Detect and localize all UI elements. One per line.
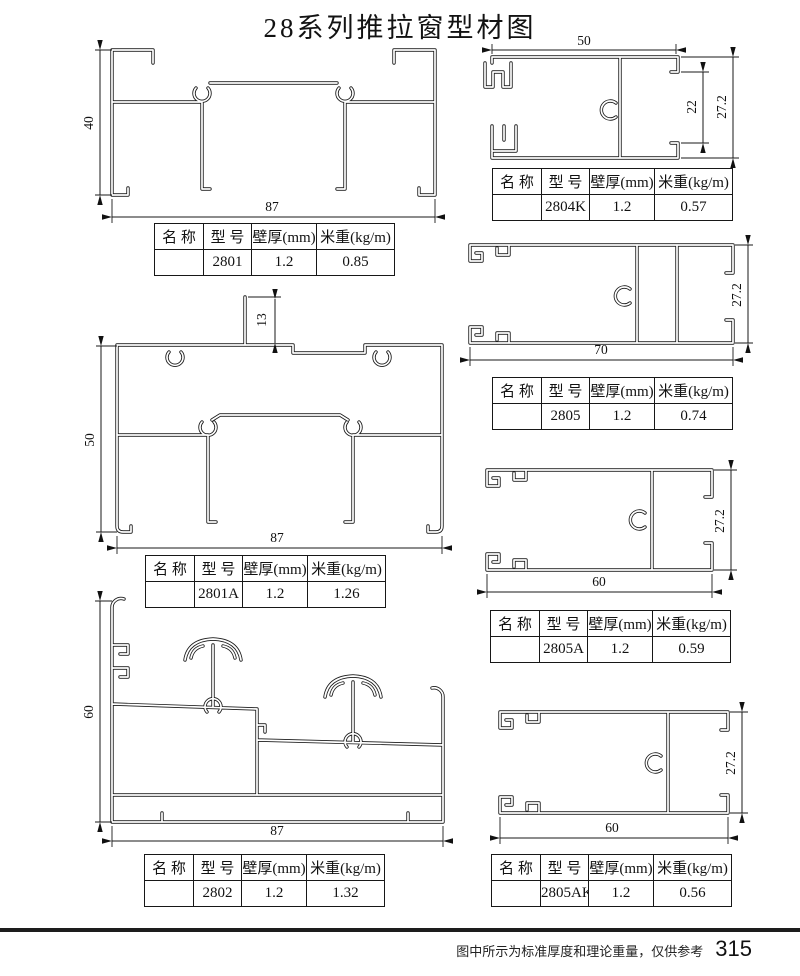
cell-weight: 1.26 [308, 582, 386, 608]
cell-model: 2805AK [541, 881, 589, 907]
header-weight: 米重(kg/m) [317, 224, 395, 250]
header-model: 型 号 [542, 378, 590, 404]
spec-table-2801: 名 称 型 号 壁厚(mm) 米重(kg/m) 2801 1.2 0.85 [154, 223, 395, 276]
header-model: 型 号 [204, 224, 252, 250]
dim-height-2804K: 27.2 [714, 95, 729, 119]
drawing-2805AK: 27.2 60 [500, 712, 748, 844]
header-model: 型 号 [195, 556, 243, 582]
cell-model: 2805 [542, 404, 590, 430]
drawing-2805: 27.2 70 [470, 245, 753, 366]
cell-name [492, 881, 541, 907]
spec-table-2805: 名 称 型 号 壁厚(mm) 米重(kg/m) 2805 1.2 0.74 [492, 377, 733, 430]
header-weight: 米重(kg/m) [654, 855, 732, 881]
dim-height-2801A: 50 [82, 433, 97, 447]
cell-thickness: 1.2 [252, 250, 317, 276]
cell-name [491, 637, 540, 663]
spec-table-2802: 名 称 型 号 壁厚(mm) 米重(kg/m) 2802 1.2 1.32 [144, 854, 385, 907]
dim-width-2804K: 50 [577, 33, 591, 48]
header-thickness: 壁厚(mm) [252, 224, 317, 250]
dim-inner-2804K: 22 [684, 100, 699, 114]
header-weight: 米重(kg/m) [655, 169, 733, 195]
header-weight: 米重(kg/m) [655, 378, 733, 404]
header-name: 名 称 [492, 855, 541, 881]
header-model: 型 号 [541, 855, 589, 881]
cell-name [145, 881, 194, 907]
dim-height-2805A: 27.2 [712, 509, 727, 533]
header-thickness: 壁厚(mm) [590, 378, 655, 404]
cell-name [146, 582, 195, 608]
header-thickness: 壁厚(mm) [590, 169, 655, 195]
cell-weight: 0.74 [655, 404, 733, 430]
footer-rule [0, 928, 800, 932]
spec-table-2805A: 名 称 型 号 壁厚(mm) 米重(kg/m) 2805A 1.2 0.59 [490, 610, 731, 663]
cell-thickness: 1.2 [590, 195, 655, 221]
drawing-2802: 60 87 [81, 598, 443, 847]
header-weight: 米重(kg/m) [307, 855, 385, 881]
header-thickness: 壁厚(mm) [589, 855, 654, 881]
dim-height-2802: 60 [81, 705, 96, 719]
drawing-2804K: 50 22 27.2 [485, 33, 739, 158]
header-name: 名 称 [145, 855, 194, 881]
catalog-page: 28系列推拉窗型材图 40 87 [0, 0, 800, 976]
cell-weight: 0.57 [655, 195, 733, 221]
cell-thickness: 1.2 [588, 637, 653, 663]
header-thickness: 壁厚(mm) [242, 855, 307, 881]
drawing-2801: 40 87 [81, 50, 435, 223]
spec-table-2804K: 名 称 型 号 壁厚(mm) 米重(kg/m) 2804K 1.2 0.57 [492, 168, 733, 221]
cell-name [493, 404, 542, 430]
profile-drawings: 40 87 50 13 87 60 [0, 0, 800, 976]
header-name: 名 称 [493, 378, 542, 404]
dim-width-2805: 70 [594, 342, 608, 357]
header-weight: 米重(kg/m) [653, 611, 731, 637]
header-weight: 米重(kg/m) [308, 556, 386, 582]
footer-note: 图中所示为标准厚度和理论重量，仅供参考 [456, 941, 703, 960]
cell-thickness: 1.2 [242, 881, 307, 907]
cell-model: 2801 [204, 250, 252, 276]
header-name: 名 称 [146, 556, 195, 582]
header-thickness: 壁厚(mm) [588, 611, 653, 637]
header-name: 名 称 [491, 611, 540, 637]
cell-thickness: 1.2 [589, 881, 654, 907]
cell-weight: 1.32 [307, 881, 385, 907]
spec-table-2805AK: 名 称 型 号 壁厚(mm) 米重(kg/m) 2805AK 1.2 0.56 [491, 854, 732, 907]
header-name: 名 称 [155, 224, 204, 250]
cell-weight: 0.56 [654, 881, 732, 907]
header-model: 型 号 [194, 855, 242, 881]
dim-width-2801A: 87 [270, 530, 284, 545]
dim-width-2805AK: 60 [605, 820, 619, 835]
dims-2801: 40 87 [81, 50, 435, 223]
header-name: 名 称 [493, 169, 542, 195]
header-model: 型 号 [540, 611, 588, 637]
cell-name [155, 250, 204, 276]
cell-model: 2801A [195, 582, 243, 608]
footer: 图中所示为标准厚度和理论重量，仅供参考 315 [456, 936, 752, 962]
drawing-2801A: 50 13 87 [82, 297, 442, 554]
dim-fin-2801A: 13 [254, 313, 269, 327]
dim-width-2802: 87 [270, 823, 284, 838]
dims-2805AK: 27.2 60 [500, 712, 748, 844]
drawing-2805A: 27.2 60 [487, 470, 737, 598]
dim-height-2805AK: 27.2 [723, 751, 738, 775]
spec-table-2801A: 名 称 型 号 壁厚(mm) 米重(kg/m) 2801A 1.2 1.26 [145, 555, 386, 608]
cell-name [493, 195, 542, 221]
dims-2804K: 50 22 27.2 [492, 33, 739, 158]
dims-2805A: 27.2 60 [487, 470, 737, 598]
page-number: 315 [715, 936, 752, 962]
cell-model: 2802 [194, 881, 242, 907]
cell-model: 2805A [540, 637, 588, 663]
dims-2805: 27.2 70 [470, 245, 753, 366]
cell-weight: 0.85 [317, 250, 395, 276]
cell-model: 2804K [542, 195, 590, 221]
cell-weight: 0.59 [653, 637, 731, 663]
header-thickness: 壁厚(mm) [243, 556, 308, 582]
cell-thickness: 1.2 [590, 404, 655, 430]
dim-width-2801: 87 [265, 199, 279, 214]
dim-height-2801: 40 [81, 116, 96, 130]
dim-width-2805A: 60 [592, 574, 606, 589]
dims-2801A: 50 13 87 [82, 297, 442, 554]
dim-height-2805: 27.2 [729, 283, 744, 307]
cell-thickness: 1.2 [243, 582, 308, 608]
header-model: 型 号 [542, 169, 590, 195]
